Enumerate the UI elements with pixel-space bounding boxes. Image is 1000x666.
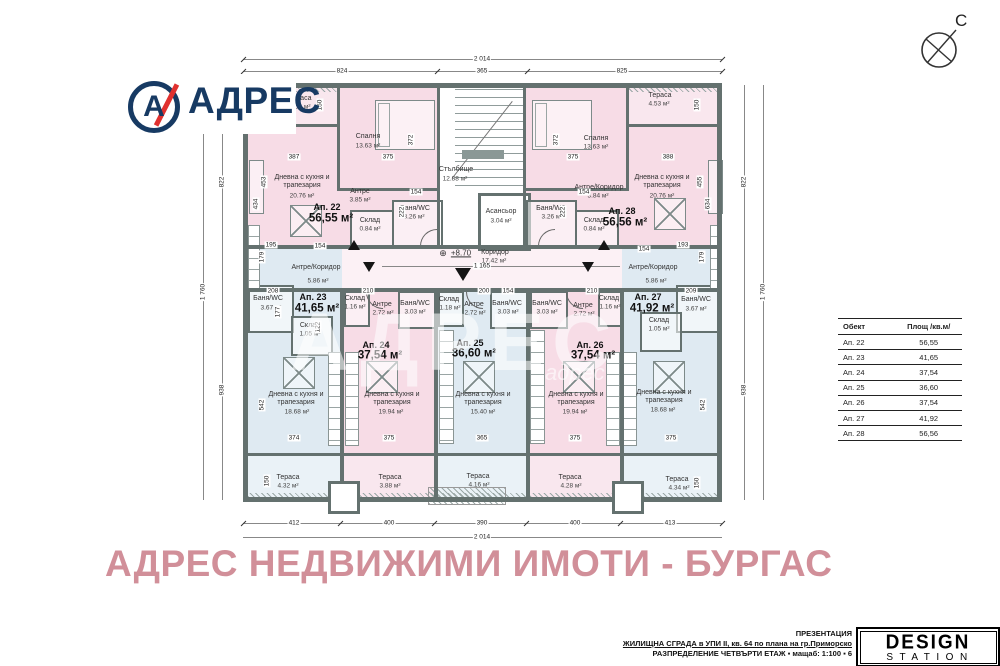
dim-line — [222, 85, 223, 500]
dim-label: 154 — [314, 243, 327, 250]
room-label: Тераса — [649, 92, 672, 100]
dim-label: 150 — [264, 475, 271, 488]
dim-label: 154 — [578, 189, 591, 196]
entrance-arrow-icon — [348, 240, 360, 250]
col-object: Обект — [838, 322, 895, 331]
kitchen-counter — [530, 330, 545, 444]
cell-object: Ап. 23 — [838, 353, 895, 362]
room-label: Баня/WC — [681, 296, 711, 304]
room-label: Спалня — [584, 135, 608, 143]
dim-label: 400 — [569, 520, 582, 527]
room-label: Антре/Коридор — [624, 264, 682, 272]
cell-area: 36,60 — [895, 383, 962, 392]
room-label: Стълбище — [439, 166, 473, 174]
room-area: 1.16 м² — [344, 303, 365, 310]
dining-table-icon — [654, 198, 686, 230]
apartment-total-area: 56,56 м² — [603, 216, 647, 229]
wall-unit-divider — [434, 290, 438, 500]
dim-label: 387 — [288, 154, 301, 161]
cell-area: 56,55 — [895, 338, 962, 347]
entrance-arrow-icon — [363, 262, 375, 272]
dim-label: 150 — [694, 99, 701, 112]
room-area: 0.84 м² — [583, 225, 604, 232]
room-label: Спалня — [356, 133, 380, 141]
wall-stair-right — [523, 85, 526, 247]
room-area: 4.34 м² — [668, 484, 689, 491]
room-area: 0.84 м² — [359, 225, 380, 232]
dim-label: 825 — [616, 68, 629, 75]
main-entrance-arrow-icon — [455, 268, 471, 281]
cell-area: 37,54 — [895, 398, 962, 407]
room-area: 12.88 м² — [443, 175, 468, 182]
design-station-frame: DESIGN STATION — [860, 631, 997, 664]
apartment-total-area: 37,54 м² — [571, 349, 615, 362]
dim-label: 412 — [288, 520, 301, 527]
dim-label: 154 — [638, 246, 651, 253]
dim-tick — [720, 69, 726, 75]
dim-label: 209 — [685, 288, 698, 295]
dim-label: 222 — [560, 206, 567, 219]
room-label: Дневна с кухня и трапезария — [269, 174, 335, 190]
dim-label: 375 — [567, 154, 580, 161]
room-area: 5.86 м² — [307, 277, 328, 284]
table-row: Ап. 23 41,65 — [838, 350, 962, 365]
room-label: Баня/WC — [532, 300, 562, 308]
entry-canopy — [428, 487, 506, 505]
apartment-total-area: 41,65 м² — [295, 302, 339, 315]
cell-object: Ап. 28 — [838, 429, 895, 438]
room-label: Тераса — [559, 474, 582, 482]
north-compass-icon: С — [905, 6, 995, 78]
dim-label: 179 — [699, 251, 706, 264]
presentation-sheet: Тераса 4.53 м² Спалня 13.63 м² Дневна с … — [0, 0, 1000, 666]
col-area: Площ /кв.м/ — [895, 322, 962, 331]
dim-label: 822 — [741, 176, 748, 189]
wall — [243, 497, 722, 502]
logo-text: АДРЕС — [188, 80, 321, 122]
dim-label: 1 760 — [760, 283, 767, 301]
apartment-total-area: 37,54 м² — [358, 349, 402, 362]
kitchen-counter — [345, 352, 359, 446]
room-area: 1.05 м² — [648, 325, 669, 332]
apartment-id: Ап. 23 — [300, 292, 327, 302]
apartment-total-area: 56,55 м² — [309, 212, 353, 225]
title-block: ПРЕЗЕНТАЦИЯ ЖИЛИЩНА СГРАДА в УПИ II, кв.… — [532, 629, 852, 659]
room-area: 19.94 м² — [563, 408, 588, 415]
room-area: 3.88 м² — [379, 482, 400, 489]
dining-table-icon — [463, 361, 495, 393]
dim-label: 200 — [478, 288, 491, 295]
dim-label: 375 — [569, 435, 582, 442]
room-area: 3.67 м² — [685, 305, 706, 312]
dim-label: 1 165 — [473, 263, 491, 270]
room-label: Дневна с кухня и трапезария — [631, 389, 697, 405]
presentation-label: ПРЕЗЕНТАЦИЯ — [532, 629, 852, 639]
wall-unit-divider — [620, 290, 624, 500]
table-row: Ап. 27 41,92 — [838, 411, 962, 426]
design-station-logo: DESIGN STATION — [856, 627, 1000, 666]
dim-label: 634 — [705, 198, 712, 211]
project-title: ЖИЛИЩНА СГРАДА в УПИ II, кв. 64 по плана… — [532, 639, 852, 649]
level-mark: +8.70 — [451, 248, 471, 257]
wall — [717, 83, 722, 502]
apartment-total-area: 41,92 м² — [630, 302, 674, 315]
dining-table-icon — [366, 361, 398, 393]
apartment-total-area: 36,60 м² — [452, 347, 496, 360]
room-label: Тераса — [467, 473, 490, 481]
dim-label: 365 — [476, 435, 489, 442]
dim-label: 400 — [383, 520, 396, 527]
entrance-arrow-icon — [582, 262, 594, 272]
dim-label: 365 — [476, 68, 489, 75]
room-area: 3.04 м² — [490, 217, 511, 224]
dim-tick — [720, 57, 726, 63]
room-area: 5.86 м² — [645, 277, 666, 284]
room-area: 13.63 м² — [356, 142, 381, 149]
room-label: Дневна с кухня и трапезария — [263, 391, 329, 407]
dim-label: 413 — [664, 520, 677, 527]
cell-area: 37,54 — [895, 368, 962, 377]
room-label: Антре/Коридор — [287, 264, 345, 272]
dim-label: 375 — [382, 154, 395, 161]
dim-label: 222 — [399, 206, 406, 219]
dim-label: 372 — [408, 134, 415, 147]
studio-name-top: DESIGN — [861, 632, 996, 652]
room-label: Склад — [599, 295, 619, 303]
wall-bedroom22 — [337, 85, 340, 190]
room-area: 3.03 м² — [404, 308, 425, 315]
room-area: 2.72 м² — [372, 309, 393, 316]
room-area: 4.32 м² — [277, 482, 298, 489]
cell-object: Ап. 27 — [838, 414, 895, 423]
wall — [243, 83, 248, 502]
room-label: Асансьор — [486, 208, 517, 216]
cell-object: Ап. 22 — [838, 338, 895, 347]
wall-terrace28 — [626, 124, 720, 127]
room-area: 4.53 м² — [648, 100, 669, 107]
room-label: Дневна с кухня и трапезария — [359, 391, 425, 407]
dim-label: 210 — [586, 288, 599, 295]
dim-label: 122 — [315, 321, 322, 334]
dim-label: 388 — [662, 154, 675, 161]
dim-label: 824 — [336, 68, 349, 75]
area-table: Обект Площ /кв.м/ Ап. 22 56,55 Ап. 23 41… — [838, 318, 962, 441]
dim-label: 2 014 — [473, 534, 491, 541]
brand-logo: А АДРЕС — [126, 74, 296, 134]
dim-line — [744, 85, 745, 500]
bed-icon — [375, 100, 435, 150]
sheet-title: РАЗПРЕДЕЛЕНИЕ ЧЕТВЪРТИ ЕТАЖ ▪ мащаб: 1:1… — [532, 649, 852, 659]
dim-label: 179 — [259, 251, 266, 264]
wall-unit-divider — [340, 290, 344, 500]
wall-unit-divider — [526, 290, 530, 500]
room-label: Антре — [372, 301, 392, 309]
room-label: Склад — [439, 296, 459, 304]
room-label: Баня/WC — [492, 300, 522, 308]
agency-watermark: АДРЕС НЕДВИЖИМИ ИМОТИ - БУРГАС — [105, 543, 765, 585]
table-row: Ап. 22 56,55 — [838, 335, 962, 350]
dim-label: 210 — [362, 288, 375, 295]
dim-label: 453 — [261, 176, 268, 189]
dim-label: 372 — [553, 134, 560, 147]
dim-label: 208 — [267, 288, 280, 295]
dim-label: 434 — [253, 198, 260, 211]
room-area: 2.72 м² — [464, 309, 485, 316]
cell-object: Ап. 26 — [838, 398, 895, 407]
level-mark-icon: ⊕ — [439, 248, 447, 258]
room-label: Антре — [464, 301, 484, 309]
room-area: 4.16 м² — [468, 481, 489, 488]
dim-label: 154 — [502, 288, 515, 295]
dim-label: 390 — [476, 520, 489, 527]
shaft-box — [612, 481, 644, 514]
room-area: 20.76 м² — [650, 192, 675, 199]
room-label: Склад — [649, 317, 669, 325]
north-label: С — [955, 11, 967, 30]
logo-letter: А — [128, 81, 180, 133]
cell-object: Ап. 24 — [838, 368, 895, 377]
apartment-id: Ап. 22 — [314, 202, 341, 212]
dim-label: 1 760 — [200, 283, 207, 301]
room-label: Коридор — [481, 249, 509, 257]
dim-label: 374 — [288, 435, 301, 442]
apartment-id: Ап. 28 — [609, 206, 636, 216]
room-area: 1.18 м² — [439, 304, 460, 311]
dining-table-icon — [563, 361, 595, 393]
table-row: Ап. 26 37,54 — [838, 396, 962, 411]
room-area: 3.84 м² — [587, 192, 608, 199]
room-area: 18.68 м² — [651, 406, 676, 413]
dim-label: 375 — [383, 435, 396, 442]
room-area: 13.63 м² — [584, 143, 609, 150]
area-table-header: Обект Площ /кв.м/ — [838, 318, 962, 335]
room-label: Тераса — [277, 474, 300, 482]
room-area: 20.76 м² — [290, 192, 315, 199]
apartment-id: Ап. 27 — [635, 292, 662, 302]
dim-label: 542 — [259, 399, 266, 412]
shaft-box — [328, 481, 360, 514]
room-label: Дневна с кухня и трапезария — [543, 391, 609, 407]
dim-label: 938 — [219, 384, 226, 397]
room-area: 18.68 м² — [285, 408, 310, 415]
room-area: 3.03 м² — [536, 308, 557, 315]
room-label: Баня/WC — [253, 295, 283, 303]
dim-label: 542 — [700, 399, 707, 412]
cell-area: 41,92 — [895, 414, 962, 423]
room-area: 19.94 м² — [379, 408, 404, 415]
room-area: 3.85 м² — [349, 196, 370, 203]
wall-terrace-line — [245, 453, 720, 456]
studio-name-bottom: STATION — [861, 653, 996, 663]
room-label: Склад — [584, 217, 604, 225]
room-area: 2.72 м² — [573, 310, 594, 317]
room-label: Антре — [573, 302, 593, 310]
cell-area: 41,65 — [895, 353, 962, 362]
table-row: Ап. 25 36,60 — [838, 381, 962, 396]
dining-table-icon — [283, 357, 315, 389]
room-label: Тераса — [379, 474, 402, 482]
room-label: Склад — [345, 295, 365, 303]
room-area: 4.28 м² — [560, 482, 581, 489]
room-area: 3.26 м² — [403, 213, 424, 220]
room-label: Склад — [360, 217, 380, 225]
dim-label: 193 — [677, 242, 690, 249]
table-row: Ап. 28 56,56 — [838, 426, 962, 441]
dim-label: 177 — [275, 306, 282, 319]
room-label: Тераса — [666, 476, 689, 484]
dim-label: 195 — [265, 242, 278, 249]
cell-area: 56,56 — [895, 429, 962, 438]
table-row: Ап. 24 37,54 — [838, 365, 962, 380]
stair-landing — [462, 150, 504, 159]
room-label: Дневна с кухня и трапезария — [450, 391, 516, 407]
room-area: 3.03 м² — [497, 308, 518, 315]
dim-label: 150 — [694, 477, 701, 490]
dim-label: 455 — [697, 176, 704, 189]
dim-label: 154 — [410, 189, 423, 196]
room-label: Баня/WC — [400, 300, 430, 308]
dim-label: 375 — [665, 435, 678, 442]
dim-label: 822 — [219, 176, 226, 189]
dim-tick — [720, 521, 726, 527]
dim-label: 938 — [741, 384, 748, 397]
cell-object: Ап. 25 — [838, 383, 895, 392]
dim-label: 2 014 — [473, 56, 491, 63]
room-area: 1.16 м² — [599, 303, 620, 310]
room-label: Дневна с кухня и трапезария — [629, 174, 695, 190]
entrance-arrow-icon — [598, 240, 610, 250]
room-label: Антре — [350, 188, 370, 196]
room-area: 15.40 м² — [471, 408, 496, 415]
